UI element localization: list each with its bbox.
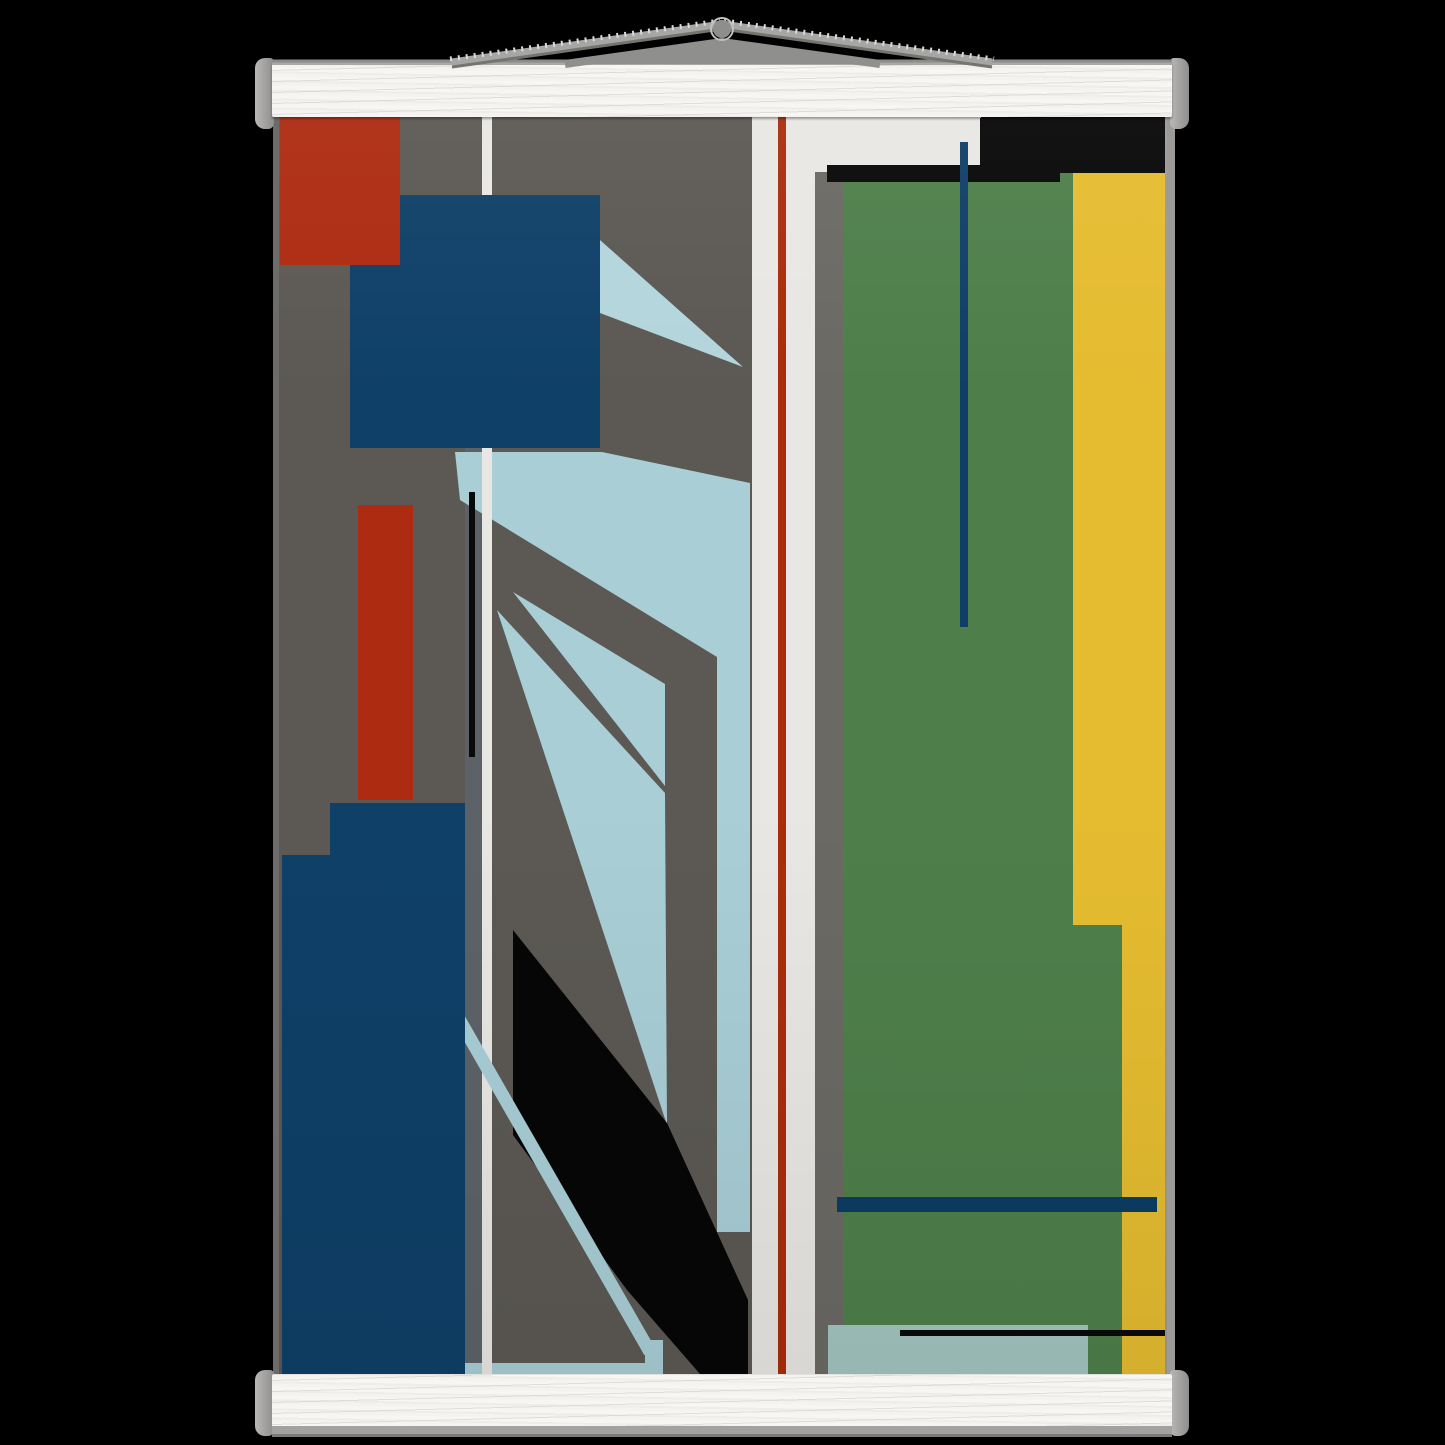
yellow-band-narrow [1122,925,1165,1374]
black-vertical-line [469,492,475,757]
green-band-lower [1073,925,1122,1374]
black-horizontal-bar [827,165,1060,182]
green-band [843,173,1073,1374]
navy-vertical-line [960,142,968,627]
navy-bottom-rectangle [282,803,465,1374]
yellow-band [1073,173,1165,925]
right-gray-column [815,172,843,1374]
red-vertical-line [778,114,786,1374]
scene [0,0,1445,1445]
black-top-right-rectangle [980,118,1165,173]
lightblue-bottom-bar [447,1363,663,1374]
poster [279,114,1167,1374]
bottom-hanger-bar [272,1374,1172,1427]
hanging-cord [0,0,1445,100]
red-bar [358,505,413,800]
lightblue-elbow [645,1340,663,1374]
navy-horizontal-bar [837,1197,1157,1212]
bottom-bar-dark-edge [272,1434,1172,1437]
bottom-bar-right-cap [1170,1370,1189,1436]
poster-artwork [279,114,1167,1374]
cord-knob [713,20,731,38]
black-bottom-line [900,1330,1165,1336]
red-rectangle-top [280,115,400,265]
white-top-right-area [752,114,981,173]
